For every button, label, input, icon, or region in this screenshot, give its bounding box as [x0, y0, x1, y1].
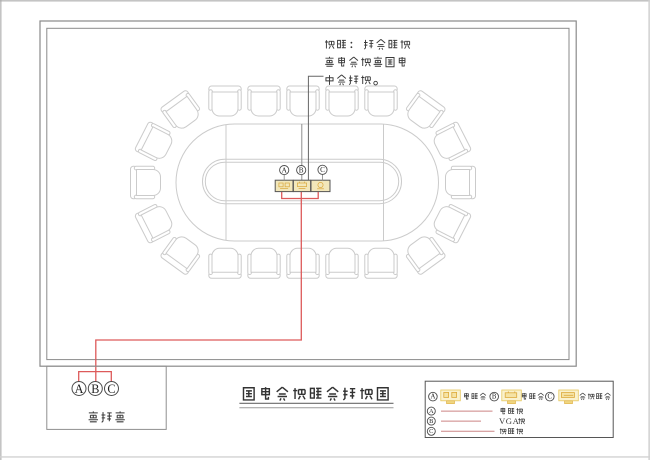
svg-text:A: A [75, 382, 84, 396]
svg-text:C: C [429, 428, 433, 435]
svg-text:B: B [299, 167, 304, 175]
svg-text:B: B [91, 382, 99, 396]
svg-text:C: C [548, 394, 553, 401]
svg-text:C: C [107, 382, 115, 396]
svg-text:C: C [320, 166, 325, 174]
svg-text:A: A [429, 408, 434, 415]
svg-text:B: B [492, 394, 497, 401]
svg-text:B: B [429, 418, 433, 425]
svg-text:A: A [430, 394, 435, 401]
svg-text:A: A [282, 167, 288, 175]
svg-text:VGA: VGA [499, 416, 520, 426]
